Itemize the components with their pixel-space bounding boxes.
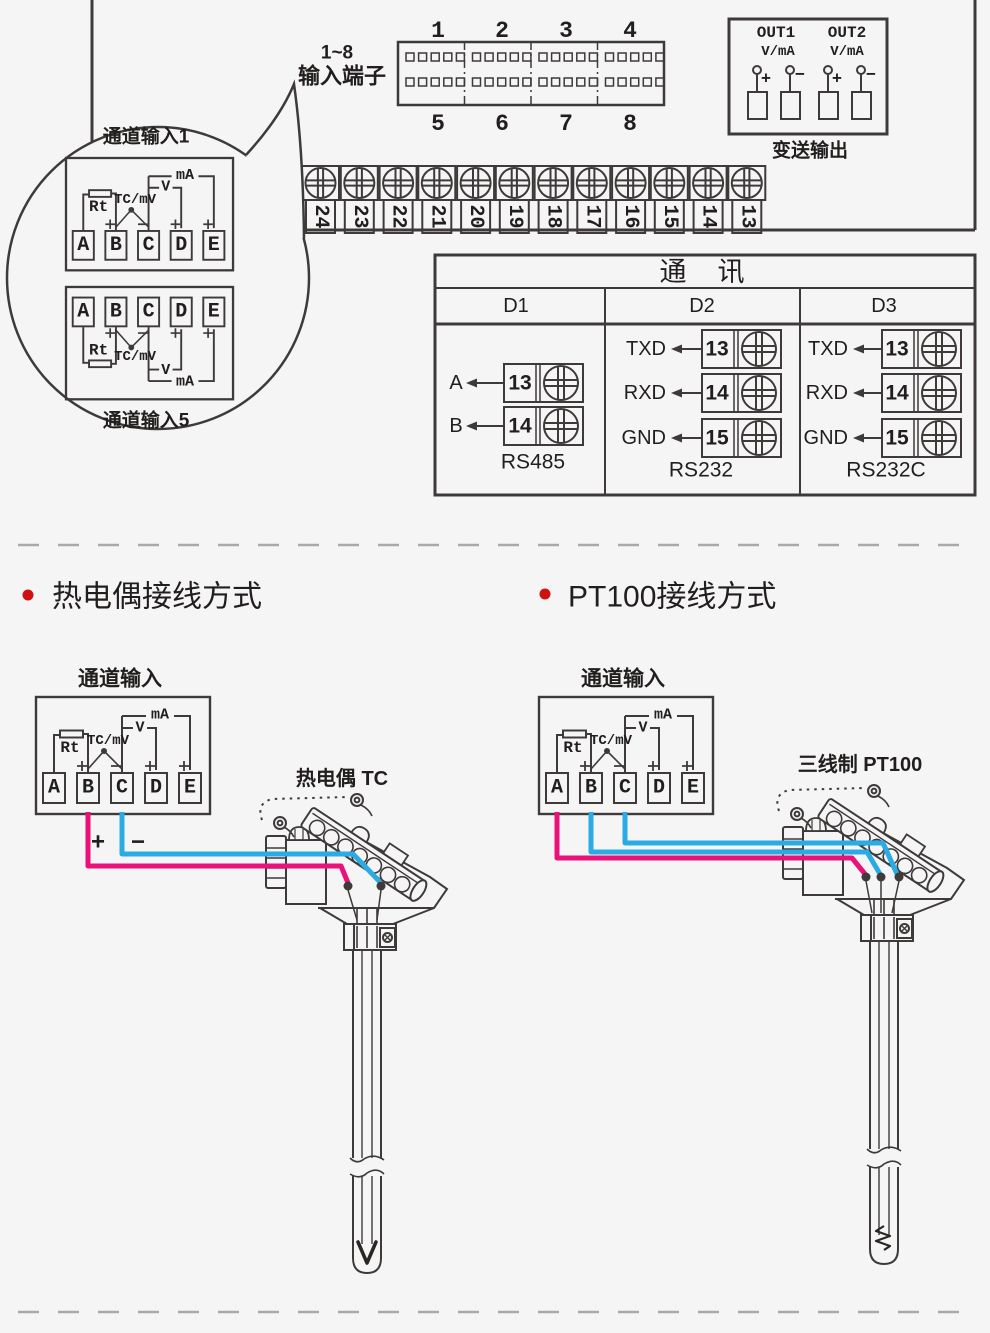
ma-label: mA [176, 374, 194, 391]
signal-label: TXD [808, 338, 848, 360]
comm-d2: TXD 13 RXD 14 GND 15 RS232 [622, 330, 781, 482]
v-label: V [638, 720, 647, 737]
signal-label: A [449, 372, 463, 394]
head-terminal-dot [877, 873, 886, 882]
terminal-letter: E [208, 234, 220, 257]
bullet-icon [540, 589, 551, 600]
head-terminal-dot [377, 882, 386, 891]
port-type-label: RS232C [846, 459, 925, 482]
terminal-letter: A [77, 234, 89, 257]
strip-terminal: 16 [612, 166, 649, 233]
head-terminal-dot [344, 882, 353, 891]
terminal-letter: B [585, 777, 597, 800]
connector-number: 5 [431, 111, 445, 137]
rt-label: Rt [89, 341, 108, 359]
communication-table: 通 讯 D1 D2 D3 A 13 B 14 RS485 TXD 13 RXD [435, 255, 975, 495]
pt100-probe-label: 三线制 PT100 [798, 752, 922, 776]
strip-number: 18 [542, 204, 565, 228]
minus-sign: − [795, 65, 805, 84]
ma-label: mA [654, 707, 672, 724]
out1-label: OUT1 [757, 24, 795, 42]
v-label: V [161, 362, 170, 379]
tcmv-label: TC/mV [590, 733, 633, 749]
vma-label: V/mA [830, 44, 864, 60]
terminal-number: 15 [705, 427, 729, 450]
strip-terminal: 18 [535, 166, 572, 233]
strip-terminal: 19 [496, 166, 533, 233]
wiring-diagram-page: 1 2 3 4 5 6 7 8 1~8 输入端子 OUT1 OUT2 V/mA … [0, 0, 990, 1333]
ma-label: mA [151, 707, 169, 724]
strip-number: 15 [658, 204, 681, 228]
comm-d3: TXD 13 RXD 14 GND 15 RS232C [804, 330, 961, 482]
terminal-letter: A [551, 777, 563, 800]
comm-col-d2: D2 [689, 295, 715, 317]
strip-terminal: 20 [457, 166, 494, 233]
connector-name-label: 输入端子 [298, 64, 386, 89]
terminal-number: 14 [508, 415, 532, 438]
terminal-letter: B [110, 234, 122, 257]
strip-number: 23 [348, 204, 371, 228]
connector-number: 4 [623, 18, 637, 44]
rt-label: Rt [89, 198, 108, 216]
strip-number: 13 [735, 204, 758, 228]
signal-label: RXD [624, 382, 666, 404]
terminal-letter: C [116, 777, 128, 800]
signal-label: GND [804, 427, 848, 449]
terminal-letter: E [184, 777, 196, 800]
channel-input-title: 通道输入 [581, 667, 665, 691]
strip-terminal: 17 [573, 166, 610, 233]
wire-minus-sign: − [131, 829, 145, 856]
plus-sign: + [832, 69, 842, 88]
tcmv-label: TC/mV [114, 349, 157, 365]
transmit-output-box: OUT1 OUT2 V/mA V/mA + − + − 变送输出 [729, 19, 887, 162]
bullet-icon [23, 590, 34, 601]
transmit-output-caption: 变送输出 [772, 139, 848, 162]
connector-number: 8 [623, 111, 637, 137]
channel-callout-bubble: 通道输入1 A B C D E Rt TC/mV V mA A B C D E … [7, 84, 309, 432]
vma-label: V/mA [761, 44, 795, 60]
ma-label: mA [176, 167, 194, 184]
port-type-label: RS485 [501, 451, 565, 474]
terminal-number: 14 [885, 382, 909, 405]
section-headings: 热电偶接线方式 PT100接线方式 [23, 581, 777, 614]
tc-probe-label: 热电偶 TC [296, 766, 388, 790]
tc-junction-mark [358, 1242, 376, 1263]
v-label: V [161, 179, 170, 196]
minus-sign: − [866, 65, 876, 84]
terminal-number: 13 [508, 372, 531, 395]
thermocouple-wiring-figure: 通道输入 A B C D E Rt TC/mV V mA 热电偶 TC + − [36, 667, 447, 1274]
terminal-letter: C [619, 777, 631, 800]
terminal-letter: E [208, 300, 220, 323]
strip-number: 17 [580, 204, 603, 228]
terminal-letter: E [687, 777, 699, 800]
tcmv-label: TC/mV [114, 192, 157, 208]
terminal-letter: C [143, 234, 155, 257]
bubble-title-bottom: 通道输入5 [103, 409, 190, 432]
strip-number: 22 [387, 204, 410, 228]
comm-col-d3: D3 [871, 295, 897, 317]
port-type-label: RS232 [669, 459, 733, 482]
tc-section-heading: 热电偶接线方式 [52, 581, 262, 614]
channel-input-title: 通道输入 [78, 667, 162, 691]
strip-number: 21 [425, 204, 448, 228]
terminal-letter: C [143, 300, 155, 323]
v-label: V [135, 720, 144, 737]
strip-terminal: 21 [418, 166, 455, 233]
terminal-letter: D [175, 300, 187, 323]
head-terminal-dot [862, 873, 871, 882]
plus-sign: + [761, 69, 771, 88]
terminal-letter: A [77, 300, 89, 323]
comm-title: 通 讯 [660, 257, 747, 287]
connector-number: 1 [431, 18, 445, 44]
terminal-letter: D [175, 234, 187, 257]
pt100-section-heading: PT100接线方式 [568, 581, 776, 614]
strip-terminal: 24 [302, 166, 339, 233]
strip-terminal: 13 [728, 166, 765, 233]
strip-number: 16 [619, 204, 642, 228]
terminal-letter: D [150, 777, 162, 800]
terminal-letter: D [653, 777, 665, 800]
terminal-number: 13 [705, 338, 728, 361]
signal-label: B [449, 415, 462, 437]
signal-label: TXD [626, 338, 666, 360]
tcmv-label: TC/mV [87, 733, 130, 749]
signal-label: RXD [806, 382, 848, 404]
bubble-title-top: 通道输入1 [103, 125, 190, 148]
pt100-resistor-mark [876, 1226, 890, 1250]
comm-d1: A 13 B 14 RS485 [449, 364, 583, 474]
strip-terminal: 23 [341, 166, 378, 233]
connector-number: 2 [495, 18, 509, 44]
terminal-letter: B [110, 300, 122, 323]
terminal-number: 15 [885, 427, 909, 450]
terminal-strip: 24 23 22 21 20 [302, 166, 765, 233]
connector-number: 6 [495, 111, 509, 137]
rt-label: Rt [60, 739, 79, 757]
strip-number: 19 [503, 204, 526, 228]
strip-terminal: 14 [690, 166, 727, 233]
comm-col-d1: D1 [503, 295, 529, 317]
pt100-wiring-figure: 通道输入 A B C D E Rt TC/mV V mA 三线制 PT100 [539, 667, 964, 1265]
strip-terminal: 15 [651, 166, 688, 233]
connector-number: 7 [559, 111, 573, 137]
wire-plus-sign: + [91, 829, 105, 856]
terminal-number: 14 [705, 382, 729, 405]
strip-terminal: 22 [380, 166, 417, 233]
strip-number: 24 [309, 204, 332, 228]
signal-label: GND [622, 427, 666, 449]
strip-number: 14 [697, 204, 720, 228]
strip-number: 20 [464, 204, 487, 228]
connector-range-label: 1~8 [321, 43, 353, 64]
connector-number: 3 [559, 18, 573, 44]
rt-label: Rt [563, 739, 582, 757]
out2-label: OUT2 [828, 24, 866, 42]
terminal-number: 13 [885, 338, 908, 361]
wiring-diagram: 1 2 3 4 5 6 7 8 1~8 输入端子 OUT1 OUT2 V/mA … [0, 0, 990, 1333]
terminal-letter: B [82, 777, 94, 800]
terminal-letter: A [48, 777, 60, 800]
head-terminal-dot [895, 873, 904, 882]
input-connector: 1 2 3 4 5 6 7 8 1~8 输入端子 [298, 18, 664, 137]
